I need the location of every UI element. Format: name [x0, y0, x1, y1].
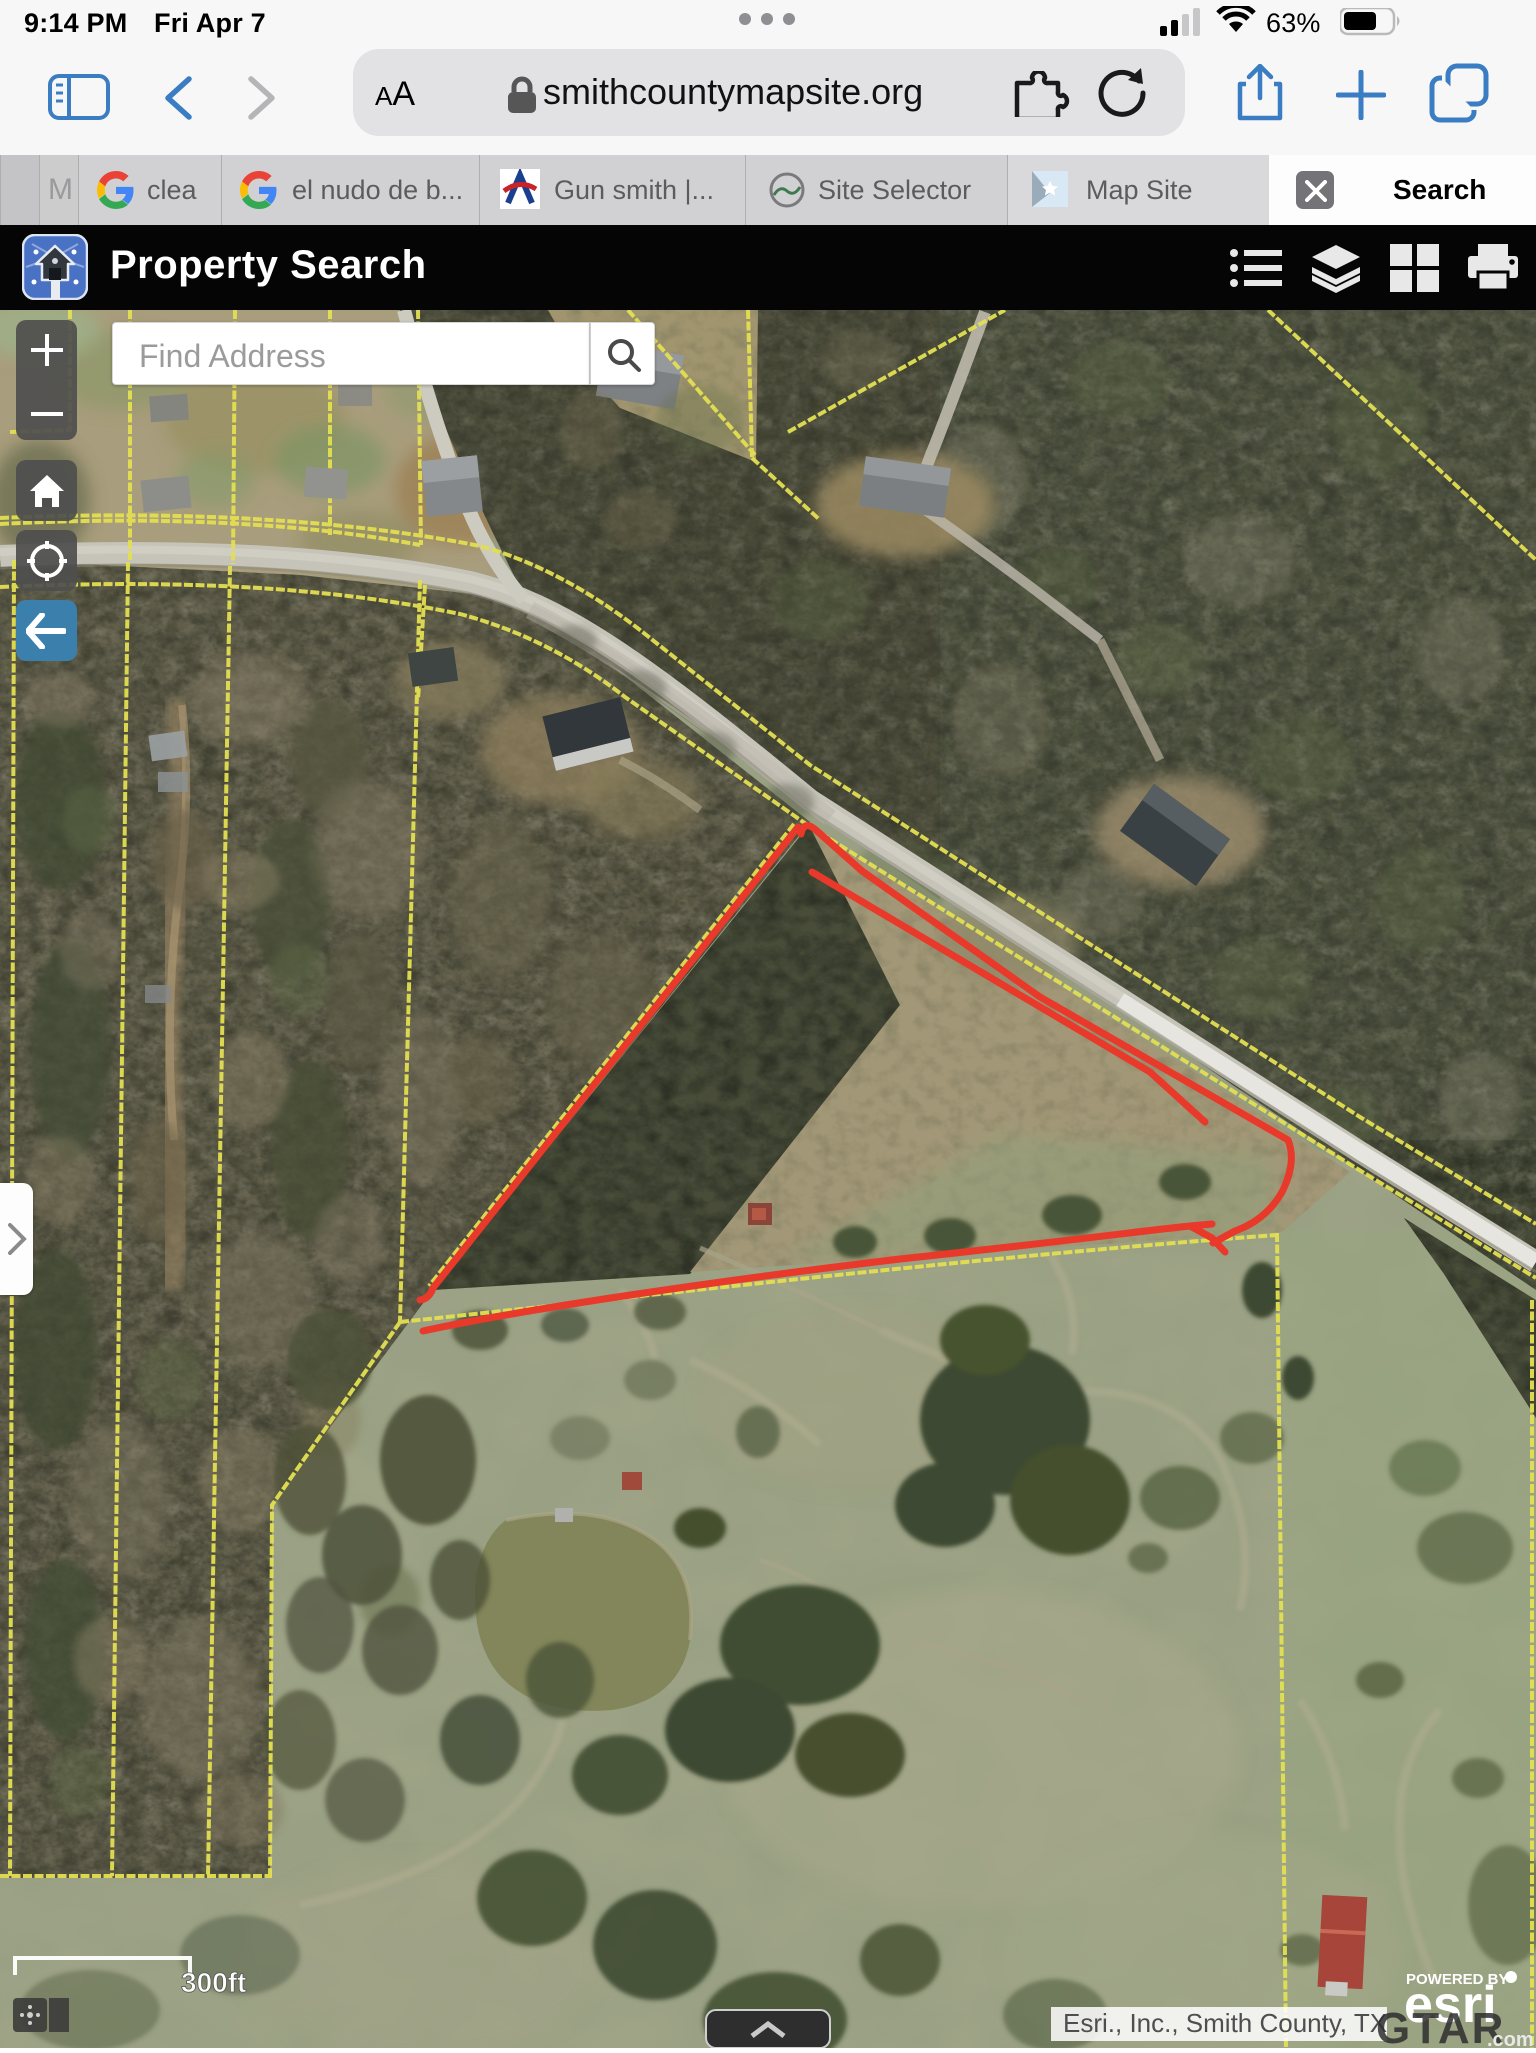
- svg-text:Esri., Inc., Smith County, TX: Esri., Inc., Smith County, TX: [1063, 2008, 1387, 2038]
- svg-text:300ft: 300ft: [181, 1967, 246, 1998]
- svg-text:.com: .com: [1487, 2029, 1534, 2048]
- svg-text:GTAR: GTAR: [1376, 2004, 1505, 2048]
